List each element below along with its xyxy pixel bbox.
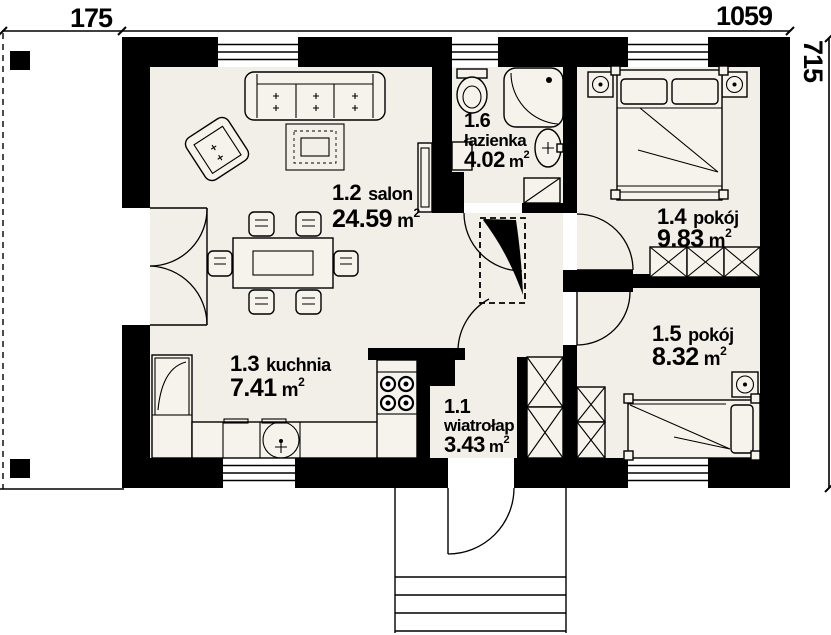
window-bathroom: [452, 37, 498, 67]
svg-text:1.3kuchnia: 1.3kuchnia: [230, 351, 332, 376]
floor-plan-page: 175 1059 715 1.2salon 24.59m2 1.3kuchnia…: [0, 0, 831, 635]
chimney-block: [432, 172, 464, 213]
kitchen-left-unit: [152, 355, 192, 458]
window-kitchen: [223, 458, 295, 488]
window-room15: [628, 458, 708, 488]
wall-hall-east-lower: [563, 345, 577, 458]
svg-text:1.2salon: 1.2salon: [332, 180, 413, 205]
wall-vestibule-north: [368, 348, 465, 360]
wardrobe-room15: [577, 387, 605, 458]
nightstand-right: [722, 72, 747, 97]
window-room14: [628, 37, 708, 67]
corner-bathtub: [504, 68, 563, 127]
wall-east: [760, 37, 790, 488]
dimension-top-left-value: 175: [70, 3, 113, 33]
entrance-door: [448, 458, 514, 554]
dining-table: [233, 238, 333, 288]
window-salon: [218, 37, 298, 67]
dimension-ticks-right: [825, 34, 831, 492]
single-bed: [624, 394, 760, 460]
porch-column-bottom: [10, 459, 30, 478]
wall-bathroom-west: [432, 67, 452, 172]
entrance-steps: [395, 486, 566, 633]
wall-hall-north: [522, 203, 570, 213]
dimension-top-right-value: 1059: [716, 1, 773, 31]
nightstand-left: [588, 72, 613, 97]
stove: [377, 360, 417, 458]
svg-text:1.1: 1.1: [444, 396, 471, 418]
porch-column-top: [10, 51, 30, 70]
floor-plan-drawing: 175 1059 715 1.2salon 24.59m2 1.3kuchnia…: [0, 0, 831, 635]
nightstand-15: [732, 372, 758, 397]
wall-vestibule-jamb: [430, 360, 455, 386]
tv: [418, 143, 432, 212]
wall-vestibule-west: [417, 360, 430, 458]
bathroom-cabinet: [524, 178, 560, 203]
double-bed: [611, 66, 728, 200]
svg-text:1.6: 1.6: [464, 110, 491, 132]
dimension-right-value: 715: [798, 40, 828, 83]
toilet: [457, 69, 487, 113]
porch: [0, 33, 124, 489]
sofa: [245, 72, 385, 120]
wall-hall-stub: [563, 270, 633, 292]
wardrobe-vestibule: [527, 357, 563, 458]
wall-bathroom-east: [563, 67, 577, 213]
